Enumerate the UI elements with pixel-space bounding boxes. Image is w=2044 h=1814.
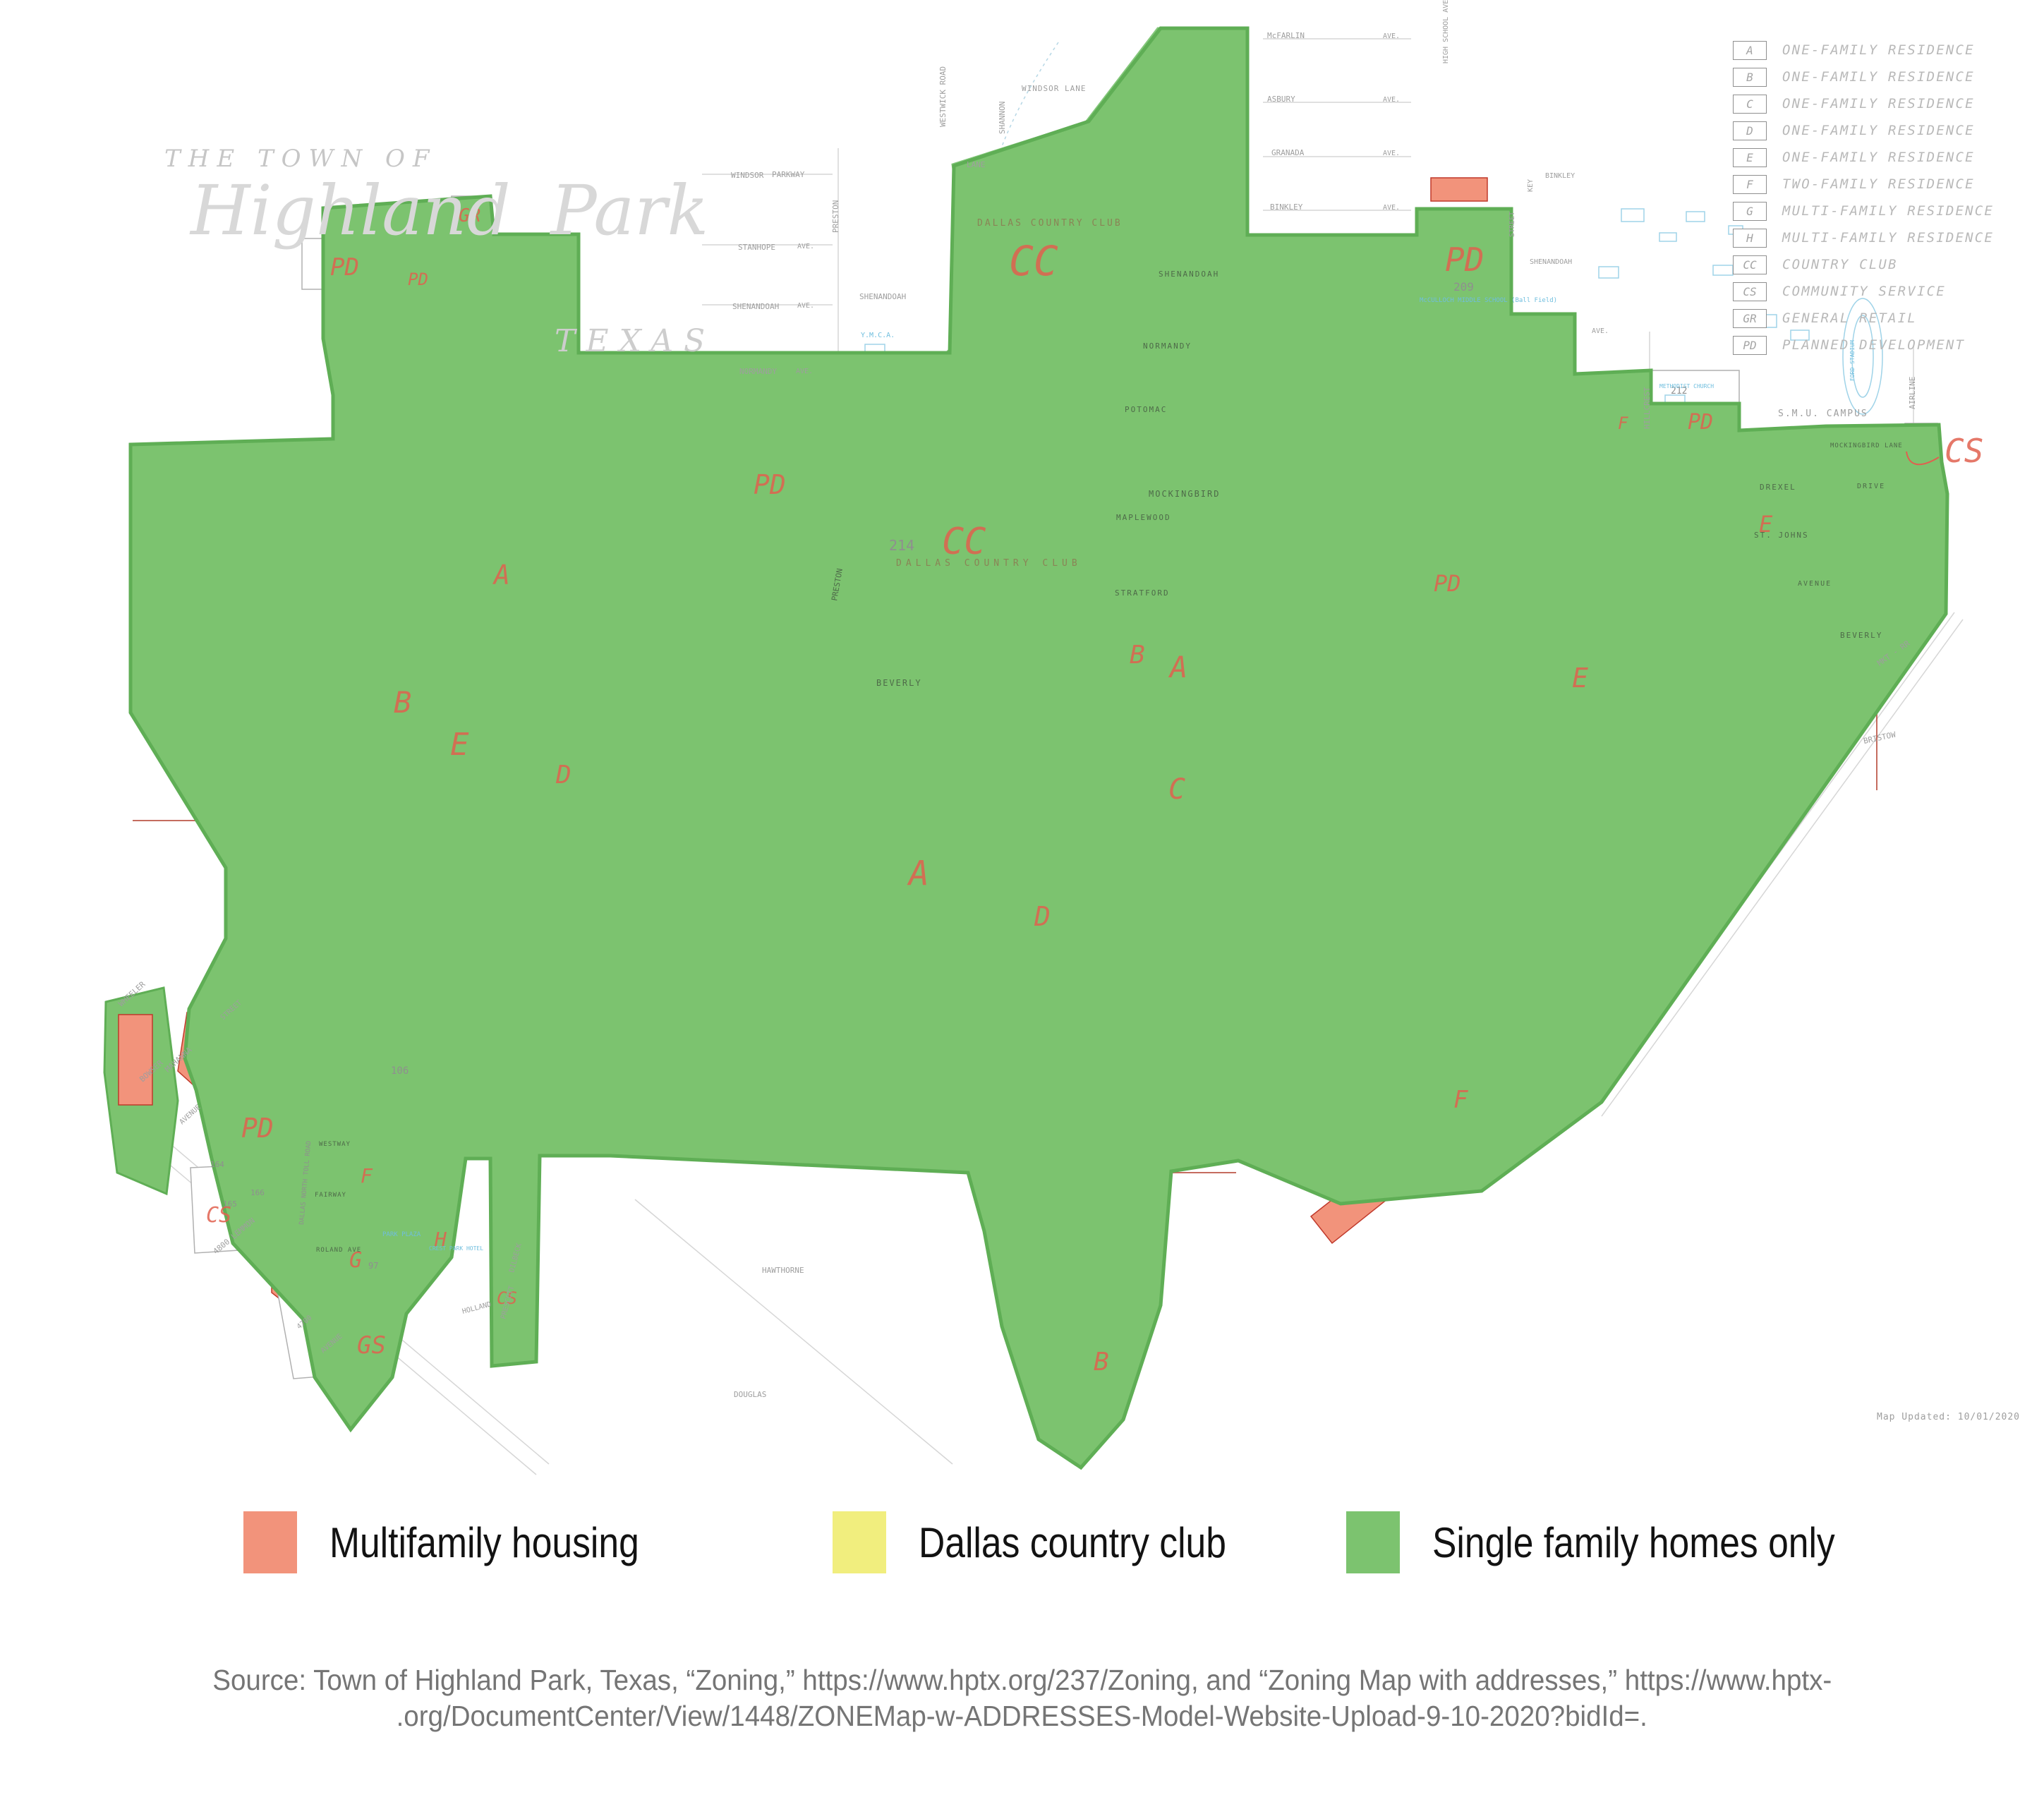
zoning-code-label: ONE-FAMILY RESIDENCE: [1782, 42, 1975, 58]
zoning-code-box: E: [1733, 148, 1767, 167]
map-label: MOCKINGBIRD: [1149, 489, 1220, 499]
map-label: BINKLEY: [1270, 202, 1303, 212]
color-legend-label: Single family homes only: [1432, 1518, 1901, 1567]
map-label: F: [1453, 1086, 1468, 1114]
map-label: C: [1168, 773, 1185, 806]
zoning-code-label: GENERAL RETAIL: [1782, 310, 1917, 326]
map-label: CC: [942, 521, 986, 563]
source-citation: Source: Town of Highland Park, Texas, “Z…: [0, 1662, 2044, 1734]
map-label: AVE.: [797, 302, 814, 310]
color-legend-item: Multifamily housing: [243, 1511, 689, 1573]
zoning-legend-row: DONE-FAMILY RESIDENCE: [1733, 121, 1994, 140]
zoning-legend-row: GMULTI-FAMILY RESIDENCE: [1733, 202, 1994, 220]
map-label: B: [394, 685, 411, 720]
zoning-code-legend: AONE-FAMILY RESIDENCEBONE-FAMILY RESIDEN…: [1733, 41, 1994, 363]
map-label: Map Updated: 10/01/2020: [1877, 1412, 2020, 1422]
color-legend-swatch: [833, 1511, 886, 1573]
map-label: GRANADA: [1271, 148, 1305, 157]
zoning-code-box: B: [1733, 68, 1767, 87]
zoning-code-box: CC: [1733, 255, 1767, 274]
zoning-legend-row: CCCOUNTRY CLUB: [1733, 255, 1994, 274]
zoning-legend-row: CONE-FAMILY RESIDENCE: [1733, 95, 1994, 113]
page-root: DALLAS COUNTRY CLUBCCCC214DALLAS COUNTRY…: [0, 0, 2044, 1814]
zoning-legend-row: BONE-FAMILY RESIDENCE: [1733, 68, 1994, 86]
zoning-code-label: PLANNED DEVELOPMENT: [1782, 337, 1965, 353]
map-label: DRIVE: [1857, 483, 1885, 490]
map-label: AVE.: [1383, 204, 1400, 212]
zoning-code-box: H: [1733, 229, 1767, 248]
map-label: NORMANDY: [1143, 341, 1192, 351]
map-label: DREXEL: [1760, 483, 1796, 492]
map-label: AVENUE: [1798, 580, 1832, 588]
map-label: LANE: [967, 160, 986, 169]
map-label: AVENUE: [179, 1103, 202, 1126]
map-label: SHENANDOAH: [1530, 258, 1572, 266]
map-label: CS: [1945, 432, 1983, 470]
map-label: WINDSOR LANE: [1022, 84, 1086, 93]
zoning-code-box: PD: [1733, 336, 1767, 355]
zoning-code-box: A: [1733, 41, 1767, 60]
map-label: McFARLIN: [1267, 31, 1305, 40]
map-label: HIGH SCHOOL AVE.: [1442, 0, 1450, 64]
zoning-code-box: C: [1733, 95, 1767, 114]
map-label: POTOMAC: [1125, 405, 1167, 414]
map-label: AVE.: [797, 243, 814, 250]
zoning-code-label: COUNTRY CLUB: [1782, 257, 1898, 272]
map-label: GS: [357, 1331, 386, 1360]
color-legend-swatch: [1346, 1511, 1400, 1573]
map-label: HAWTHORNE: [762, 1266, 804, 1275]
zoning-code-label: ONE-FAMILY RESIDENCE: [1782, 96, 1975, 111]
zoning-code-label: ONE-FAMILY RESIDENCE: [1782, 69, 1975, 85]
map-label: A: [907, 854, 929, 893]
map-label: SHENANDOAH: [859, 292, 906, 301]
map-label: D: [1034, 901, 1051, 932]
map-label: McCULLOCH MIDDLE SCHOOL (Ball Field): [1420, 297, 1557, 304]
zoning-code-box: G: [1733, 202, 1767, 221]
zoning-legend-row: FTWO-FAMILY RESIDENCE: [1733, 175, 1994, 193]
map-label: PD: [1445, 241, 1484, 279]
map-label: 214: [889, 537, 914, 554]
map-label: E: [1572, 663, 1588, 694]
map-label: PD: [1434, 570, 1461, 597]
map-label: FAIRWAY: [315, 1192, 346, 1199]
zoning-code-label: ONE-FAMILY RESIDENCE: [1782, 150, 1975, 165]
zoning-legend-row: CSCOMMUNITY SERVICE: [1733, 282, 1994, 301]
color-legend-item: Single family homes only: [1346, 1511, 1901, 1573]
zoning-code-box: F: [1733, 175, 1767, 194]
map-label: SHANNON: [998, 102, 1007, 134]
map-label: AVE.: [796, 368, 813, 375]
source-line2: .org/DocumentCenter/View/1448/ZONEMap-w-…: [397, 1698, 1647, 1734]
map-label: 97: [368, 1261, 378, 1271]
map-label: KEY: [1527, 179, 1535, 192]
zoning-code-box: GR: [1733, 309, 1767, 328]
map-label: STREET: [1508, 212, 1516, 237]
map-label: 165: [223, 1199, 237, 1209]
map-label: A: [492, 560, 510, 591]
map-label: SHENANDOAH: [732, 302, 779, 311]
map-label: Y.M.C.A.: [861, 332, 895, 339]
map-label: AVE.: [1383, 96, 1400, 104]
map-label: B: [1130, 641, 1145, 670]
map-label: E: [450, 727, 469, 763]
map-label: S.M.U. CAMPUS: [1778, 409, 1868, 419]
zoning-legend-row: HMULTI-FAMILY RESIDENCE: [1733, 229, 1994, 247]
map-label: NORMANDY: [739, 367, 777, 376]
map-label: CREST PARK HOTEL: [429, 1245, 483, 1252]
zoning-code-label: TWO-FAMILY RESIDENCE: [1782, 176, 1975, 192]
map-label: HILLCREST: [1643, 387, 1652, 429]
map-label: BEVERLY: [1840, 631, 1882, 640]
map-label: WINDSOR: [731, 171, 764, 180]
map-title-line2: Highland Park: [191, 171, 708, 250]
map-label: ST. JOHNS: [1754, 531, 1809, 540]
map-label: BINKLEY: [1545, 172, 1575, 180]
map-label: AVE.: [1592, 327, 1609, 335]
map-label: PARKWAY: [772, 170, 805, 179]
map-label: PD: [1688, 410, 1713, 435]
map-label: ASBURY: [1267, 95, 1295, 104]
map-label: 166: [250, 1188, 265, 1197]
zoning-code-label: COMMUNITY SERVICE: [1782, 284, 1946, 299]
color-legend-item: Dallas country club: [833, 1511, 1276, 1573]
color-legend-swatch: [243, 1511, 297, 1573]
map-label: 164: [210, 1160, 224, 1169]
map-label: PARK PLAZA: [382, 1231, 421, 1238]
map-label: MAPLEWOOD: [1116, 513, 1171, 522]
map-label: DOUGLAS: [734, 1390, 766, 1399]
map-label: ROLAND AVE: [316, 1247, 361, 1254]
map-label: WESTWICK ROAD: [938, 66, 948, 127]
zoning-code-label: MULTI-FAMILY RESIDENCE: [1782, 203, 1994, 219]
map-label: AVE.: [1383, 32, 1400, 40]
zoning-code-box: D: [1733, 121, 1767, 140]
map-title-line1: THE TOWN OF: [164, 145, 437, 173]
map-label: PD: [754, 469, 786, 500]
map-label: SHENANDOAH: [1159, 270, 1219, 279]
map-label: STANHOPE: [738, 243, 775, 252]
map-label: D: [555, 761, 572, 790]
zoning-legend-row: AONE-FAMILY RESIDENCE: [1733, 41, 1994, 59]
map-label: BEVERLY: [876, 678, 922, 688]
zoning-code-box: CS: [1733, 282, 1767, 301]
map-label: STRATFORD: [1115, 588, 1170, 598]
map-label: WESTWAY: [319, 1141, 351, 1148]
map-label: AIRLINE: [1908, 377, 1917, 409]
map-label: MOCKINGBIRD LANE: [1830, 442, 1903, 449]
map-label: METHODIST CHURCH: [1659, 383, 1714, 389]
zoning-legend-row: PDPLANNED DEVELOPMENT: [1733, 336, 1994, 354]
map-label: 209: [1453, 280, 1474, 294]
map-label: PD: [330, 253, 359, 282]
map-label: DALLAS COUNTRY CLUB: [977, 218, 1123, 229]
map-label: A: [1168, 650, 1187, 684]
zoning-code-label: ONE-FAMILY RESIDENCE: [1782, 123, 1975, 138]
map-label: PRESTON: [831, 200, 840, 233]
map-label: PD: [241, 1113, 274, 1144]
map-label: F: [361, 1164, 373, 1187]
zoning-legend-row: GRGENERAL RETAIL: [1733, 309, 1994, 327]
map-label: CC: [1009, 237, 1058, 285]
map-label: HOLLAND: [461, 1300, 492, 1316]
map-label: DALLAS COUNTRY CLUB: [896, 558, 1082, 569]
color-legend-label: Dallas country club: [919, 1518, 1276, 1567]
map-label: 106: [391, 1065, 409, 1077]
map-label: PD: [408, 270, 428, 289]
zoning-code-label: MULTI-FAMILY RESIDENCE: [1782, 230, 1994, 246]
map-title-line3: TEXAS: [555, 323, 715, 359]
map-label: F: [1618, 413, 1628, 433]
source-line1: Source: Town of Highland Park, Texas, “Z…: [212, 1662, 1832, 1698]
zoning-legend-row: EONE-FAMILY RESIDENCE: [1733, 148, 1994, 167]
map-label: AVE.: [1383, 150, 1400, 157]
map-label: B: [1094, 1348, 1109, 1377]
color-legend-label: Multifamily housing: [329, 1518, 689, 1567]
